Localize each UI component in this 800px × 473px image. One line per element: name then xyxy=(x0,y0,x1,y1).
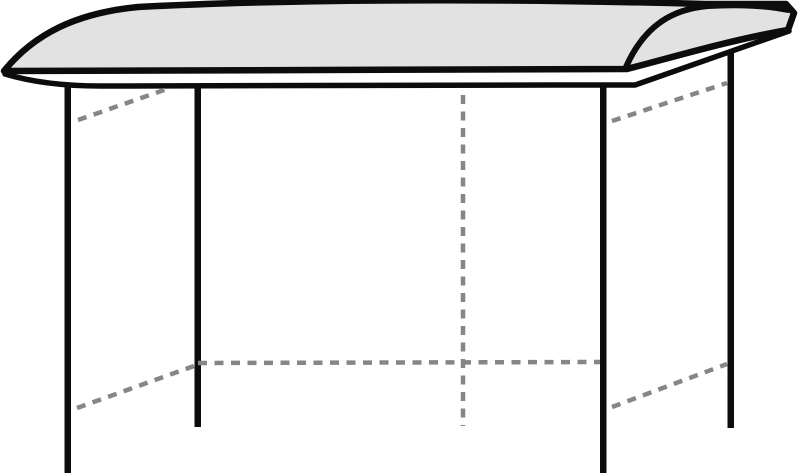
post-front-left xyxy=(65,86,72,473)
post-rear-right xyxy=(728,52,735,428)
hidden-rail-bottom-right xyxy=(612,364,727,407)
hidden-rail-rear-bottom xyxy=(198,362,600,363)
post-rear-left xyxy=(195,84,202,427)
post-front-right xyxy=(600,84,607,473)
hidden-rail-top-left xyxy=(78,89,167,120)
canopy-diagram-svg xyxy=(0,0,800,473)
hidden-rail-bottom-left xyxy=(77,366,194,408)
hidden-rail-top-right xyxy=(612,83,727,121)
canopy-diagram xyxy=(0,0,800,473)
